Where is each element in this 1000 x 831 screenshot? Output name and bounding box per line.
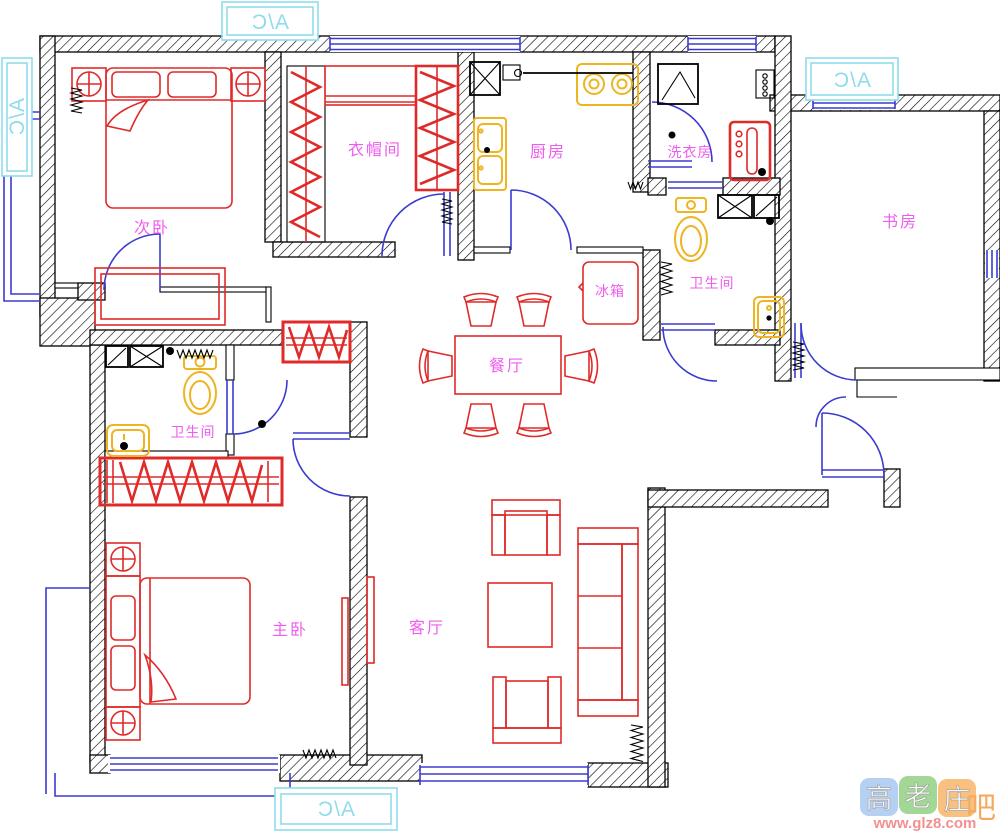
ac-tag-right: A/C: [806, 58, 898, 100]
room-label-yimaojian: 衣帽间: [348, 141, 402, 159]
ac-tag-top: A/C: [222, 2, 318, 40]
wall-left-step: [40, 298, 95, 346]
hinge-dot: [766, 217, 774, 225]
wall-study-right: [984, 111, 1000, 381]
room-label-chufang: 厨房: [530, 143, 566, 161]
wall-master-divider-up: [350, 322, 367, 437]
room-label-weishengjian-right: 卫生间: [690, 276, 735, 292]
wall-laundry-bottom-1: [648, 178, 666, 195]
room-label-canting: 餐厅: [489, 357, 525, 375]
window-top-laundry: [688, 36, 756, 52]
watermark-char-1: 高: [866, 784, 893, 814]
room-label-zhuwo: 主卧: [272, 621, 308, 639]
wall-bathleft-right-up: [226, 345, 234, 380]
ac-label-right: A/C: [833, 69, 871, 92]
ac-tag-left: A/C: [2, 58, 32, 176]
hinge-dot: [258, 420, 266, 428]
wall-living-right: [648, 488, 665, 787]
room-label-keting: 客厅: [409, 619, 445, 637]
room-label-weishengjian-left: 卫生间: [171, 425, 216, 441]
window-study-right: [985, 250, 999, 278]
wall-entry-bottom: [648, 490, 828, 507]
window-master-bottom: [108, 755, 280, 773]
wall-bottom-left: [90, 755, 110, 773]
hinge-dot: [758, 168, 766, 176]
ac-tag-bottom: A/C: [275, 788, 397, 830]
wall-bed2-bottom-a: [55, 283, 78, 288]
wall-corridor-top: [273, 242, 395, 257]
room-label-xiyifang: 洗衣房: [668, 145, 713, 161]
wall-left-top: [40, 36, 55, 316]
wall-kitchen-bottom-a: [474, 247, 510, 253]
wall-entry-post: [884, 469, 900, 507]
hinge-dot: [166, 347, 174, 355]
wall-bed2-divider: [265, 52, 281, 242]
wall-kitchen-bottom-b: [577, 247, 643, 253]
ac-label-left: A/C: [6, 98, 29, 136]
watermark-url: www.glz8.com: [873, 815, 977, 831]
hinge-dot: [669, 132, 676, 139]
floor-plan-svg: 次卧 衣帽间 厨房 洗衣房 书房 卫生间 冰箱 餐厅 卫生间 主卧 客厅 A/C…: [0, 0, 1000, 831]
ac-label-bottom: A/C: [317, 798, 355, 821]
room-label-ciwo: 次卧: [134, 219, 170, 237]
wall-study-bottom: [855, 368, 1000, 380]
wall-fridge-nook: [643, 250, 660, 340]
wall-kitchen-right: [633, 52, 650, 192]
room-label-shufang: 书房: [882, 213, 918, 231]
ac-label-top: A/C: [251, 11, 289, 34]
wall-kitchen-left: [458, 52, 474, 260]
wall-bed2-bottom-c: [160, 287, 268, 292]
window-top-main: [330, 36, 520, 52]
watermark-char-2: 老: [905, 782, 932, 812]
wall-bathleft-top: [90, 330, 282, 345]
wall-corridor-side: [266, 287, 271, 322]
window-living-bottom: [420, 763, 588, 787]
room-label-bingxiang: 冰箱: [595, 284, 625, 300]
wall-master-divider-low: [350, 497, 367, 765]
wall-left-low: [90, 345, 105, 763]
floor-plan-page: 次卧 衣帽间 厨房 洗衣房 书房 卫生间 冰箱 餐厅 卫生间 主卧 客厅 A/C…: [0, 0, 1000, 831]
